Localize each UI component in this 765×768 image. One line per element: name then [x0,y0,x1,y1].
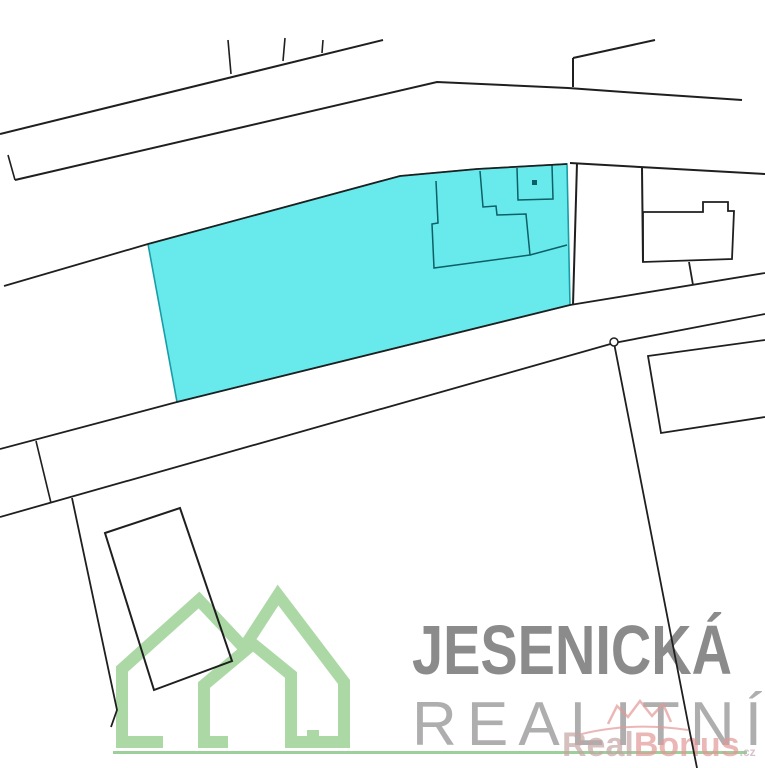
boundary-west-mid [4,244,148,286]
building-east-stem [689,262,693,285]
boundary-southwest [72,498,117,727]
road-north-upper-edge [0,40,383,134]
road-north-lower-edge [15,82,742,180]
boundary-east-of-parcel [573,163,577,305]
building-east-outline [643,202,734,262]
boundary-stub-1 [228,40,231,74]
portal-watermark-part1: Real [562,726,634,764]
edge-tick-west [8,155,15,180]
cadastral-map-image: JESENICKÁ REALITNÍ RealBonus.cz [0,0,765,768]
branch-diagonal-ne [573,40,655,58]
portal-watermark-part2: Bonus [634,726,740,764]
boundary-stub-2 [283,38,285,61]
boundary-stub-3 [322,40,323,53]
parcel-point-marker [532,180,537,185]
cadastral-map: JESENICKÁ REALITNÍ RealBonus.cz [0,0,765,768]
cross-tick-west [36,441,51,503]
highlighted-parcel [148,164,570,402]
road-east-upper-edge [570,163,765,174]
portal-watermark-suffix: .cz [740,745,756,759]
survey-point-circle [610,338,618,346]
agency-name-line1: JESENICKÁ [412,611,732,689]
parcel-southeast-outline [648,340,765,433]
portal-watermark-text: RealBonus.cz [562,726,756,764]
